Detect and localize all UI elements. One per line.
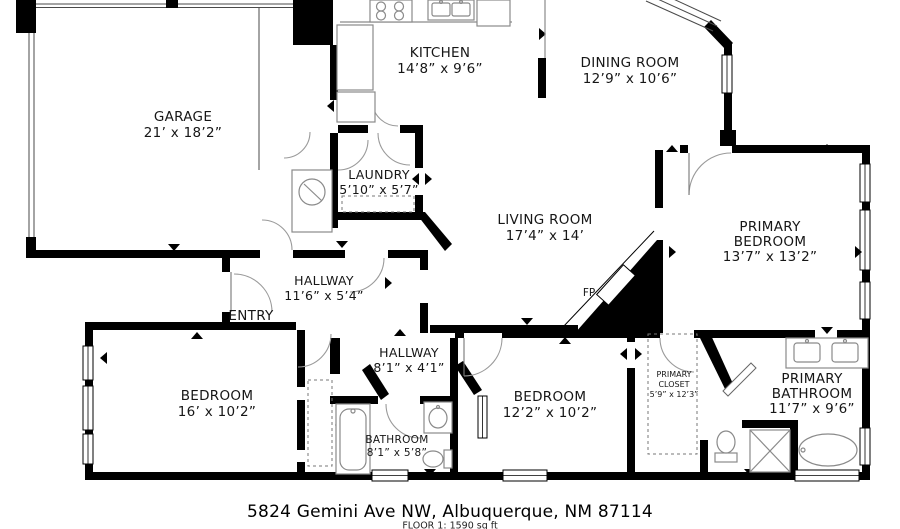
hallway-lower-dims: 8’1” x 4’1” bbox=[373, 360, 444, 375]
garage-name: GARAGE bbox=[154, 109, 212, 125]
dining-room-name: DINING ROOM bbox=[581, 55, 680, 71]
room-label-dining-room: DINING ROOM 12’9” x 10’6” bbox=[581, 55, 680, 87]
bedroom-middle-name: BEDROOM bbox=[514, 389, 587, 405]
washer-dryer-area bbox=[342, 196, 414, 212]
primary-bathroom-name2: BATHROOM bbox=[772, 386, 853, 402]
living-room-dims: 17’4” x 14’ bbox=[506, 228, 584, 244]
bathroom-dims: 8’1” x 5’8” bbox=[367, 447, 427, 459]
soaking-tub-icon bbox=[799, 434, 857, 466]
address-text: 5824 Gemini Ave NW, Albuquerque, NM 8711… bbox=[247, 502, 653, 522]
primary-bedroom-dims: 13’7” x 13’2” bbox=[723, 249, 818, 265]
primary-closet-name2: CLOSET bbox=[658, 380, 689, 389]
entry-label: ENTRY bbox=[228, 308, 274, 324]
room-label-primary-closet: PRIMARY CLOSET 5’9” x 12’3” bbox=[650, 370, 699, 399]
refrigerator-icon bbox=[477, 0, 510, 26]
room-label-hallway-upper: HALLWAY 11’6” x 5’4” bbox=[284, 273, 364, 303]
hallway-upper-name: HALLWAY bbox=[294, 273, 354, 288]
room-label-living-room: LIVING ROOM 17’4” x 14’ bbox=[497, 212, 592, 244]
primary-bathroom-name1: PRIMARY bbox=[781, 371, 843, 387]
room-label-bathroom: BATHROOM 8’1” x 5’8” bbox=[365, 434, 428, 459]
dining-room-dims: 12’9” x 10’6” bbox=[583, 71, 678, 87]
garage-dims: 21’ x 18’2” bbox=[144, 125, 222, 141]
fireplace-label: FP bbox=[583, 287, 595, 299]
living-room-name: LIVING ROOM bbox=[497, 212, 592, 228]
primary-closet-dims: 5’9” x 12’3” bbox=[650, 390, 699, 399]
hallway-lower-name: HALLWAY bbox=[379, 345, 439, 360]
bedroom-left-name: BEDROOM bbox=[181, 388, 254, 404]
floor-plan-page: GARAGE 21’ x 18’2” KITCHEN 14’8” x 9’6” … bbox=[0, 0, 900, 529]
toilet-icon bbox=[423, 450, 452, 468]
stove-icon bbox=[370, 0, 412, 22]
floor-summary-text: FLOOR 1: 1590 sq ft bbox=[402, 521, 498, 529]
room-label-hallway-lower: HALLWAY 8’1” x 4’1” bbox=[373, 345, 444, 375]
kitchen-dims: 14’8” x 9’6” bbox=[397, 61, 483, 77]
footer: 5824 Gemini Ave NW, Albuquerque, NM 8711… bbox=[247, 502, 653, 529]
primary-bedroom-name2: BEDROOM bbox=[734, 234, 807, 250]
closet-area bbox=[308, 380, 332, 466]
primary-bathroom-dims: 11’7” x 9’6” bbox=[769, 401, 855, 417]
primary-bedroom-name1: PRIMARY bbox=[739, 219, 801, 235]
kitchen-name: KITCHEN bbox=[410, 45, 471, 61]
counter-cabinet bbox=[337, 25, 373, 90]
counter-cabinet bbox=[337, 92, 375, 122]
hallway-upper-dims: 11’6” x 5’4” bbox=[284, 288, 364, 303]
shower-icon bbox=[750, 430, 790, 472]
double-vanity-icon bbox=[786, 338, 868, 368]
room-label-garage: GARAGE 21’ x 18’2” bbox=[144, 109, 222, 141]
bathroom-name: BATHROOM bbox=[365, 434, 428, 446]
water-heater-icon bbox=[292, 170, 332, 232]
primary-closet-name1: PRIMARY bbox=[656, 370, 691, 379]
room-label-bedroom-middle: BEDROOM 12’2” x 10’2” bbox=[503, 389, 598, 421]
room-label-laundry: LAUNDRY 5’10” x 5’7” bbox=[339, 167, 419, 197]
bedroom-left-dims: 16’ x 10’2” bbox=[178, 404, 256, 420]
room-label-primary-bathroom: PRIMARY BATHROOM 11’7” x 9’6” bbox=[769, 371, 855, 417]
kitchen-sink-icon bbox=[428, 0, 474, 20]
bathroom-sink-icon bbox=[424, 402, 452, 433]
garage-door-gap bbox=[260, 250, 293, 258]
floor-plan: GARAGE 21’ x 18’2” KITCHEN 14’8” x 9’6” … bbox=[0, 0, 900, 529]
room-label-bedroom-left: BEDROOM 16’ x 10’2” bbox=[178, 388, 256, 420]
laundry-name: LAUNDRY bbox=[348, 167, 410, 182]
primary-toilet-icon bbox=[715, 431, 737, 462]
laundry-dims: 5’10” x 5’7” bbox=[339, 182, 419, 197]
room-label-kitchen: KITCHEN 14’8” x 9’6” bbox=[397, 45, 483, 77]
room-label-primary-bedroom: PRIMARY BEDROOM 13’7” x 13’2” bbox=[723, 219, 818, 265]
bedroom-middle-dims: 12’2” x 10’2” bbox=[503, 405, 598, 421]
